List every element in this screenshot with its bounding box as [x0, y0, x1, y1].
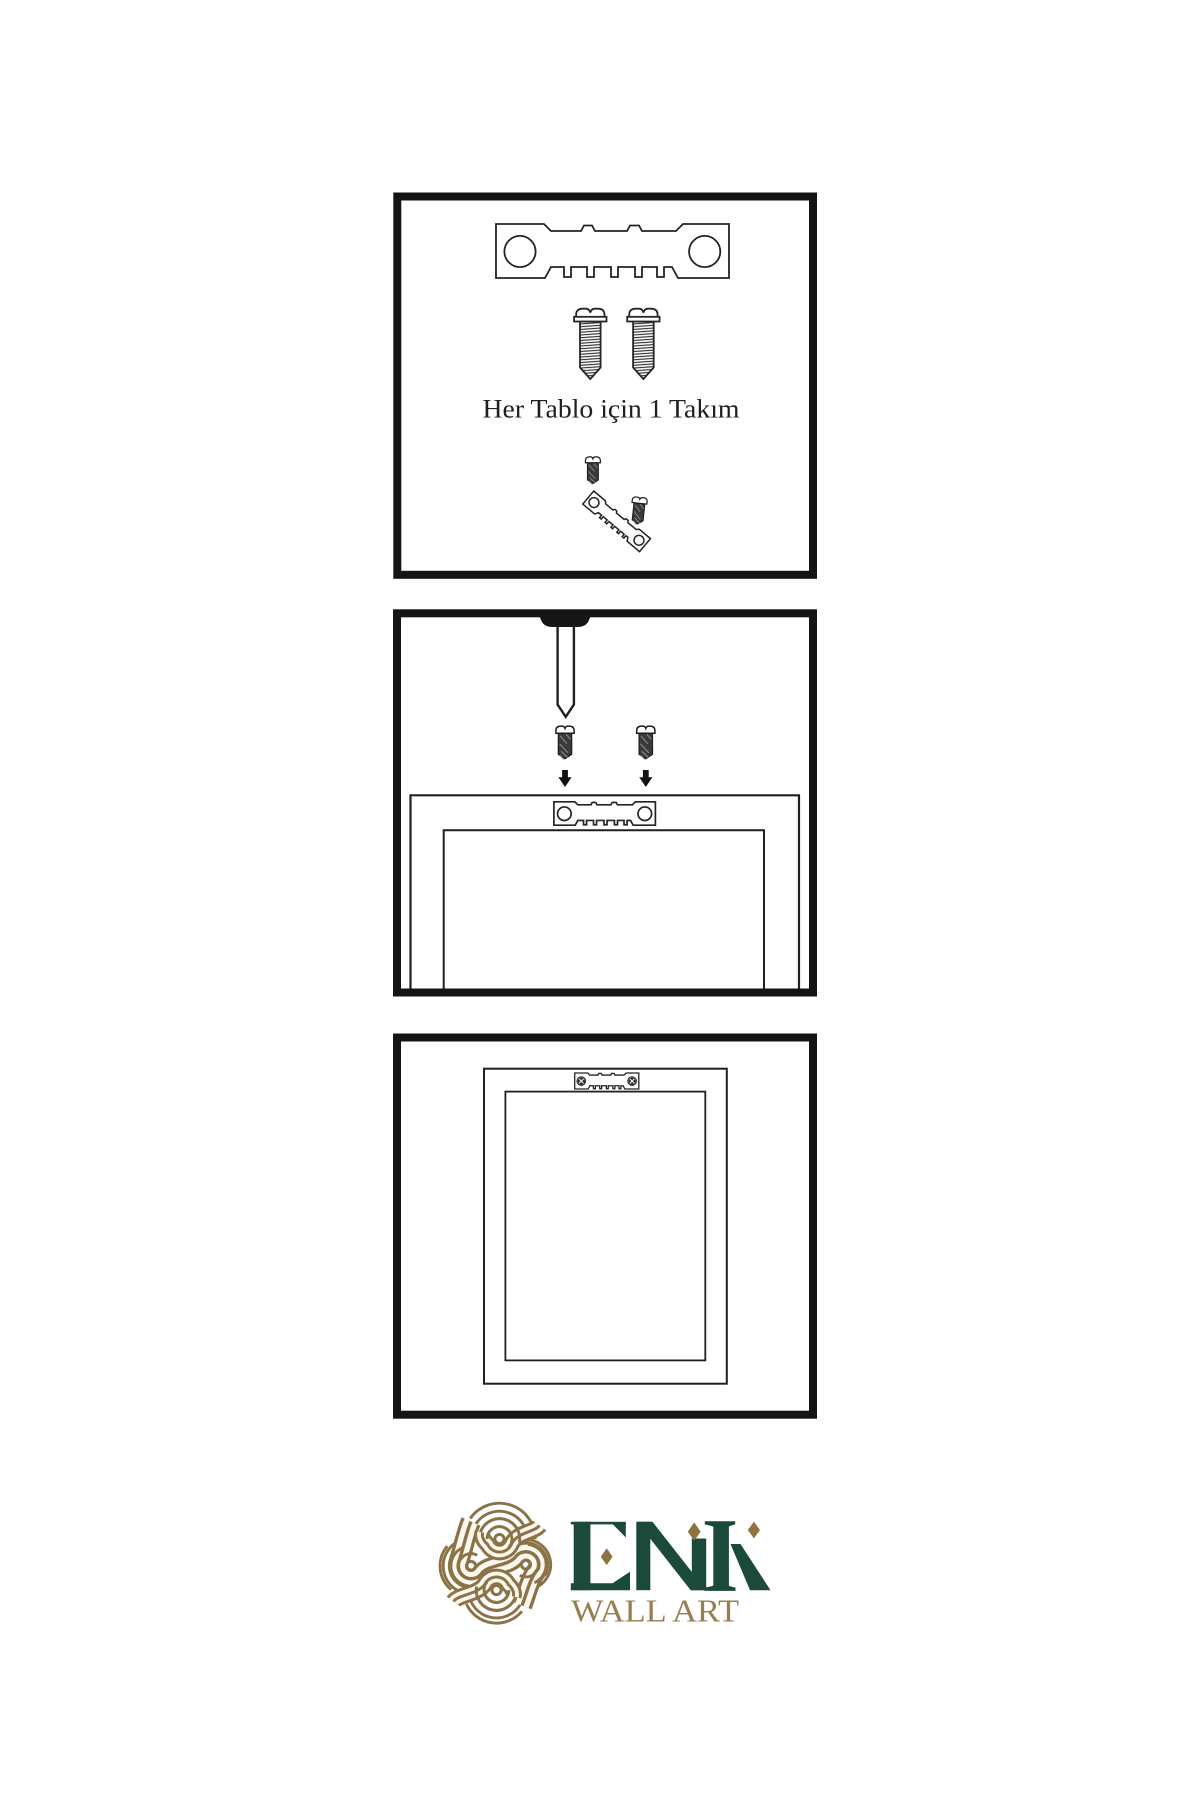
svg-text:Her Tablo için 1 Takım: Her Tablo için 1 Takım: [483, 395, 740, 424]
svg-text:WALL ART: WALL ART: [571, 1592, 739, 1628]
